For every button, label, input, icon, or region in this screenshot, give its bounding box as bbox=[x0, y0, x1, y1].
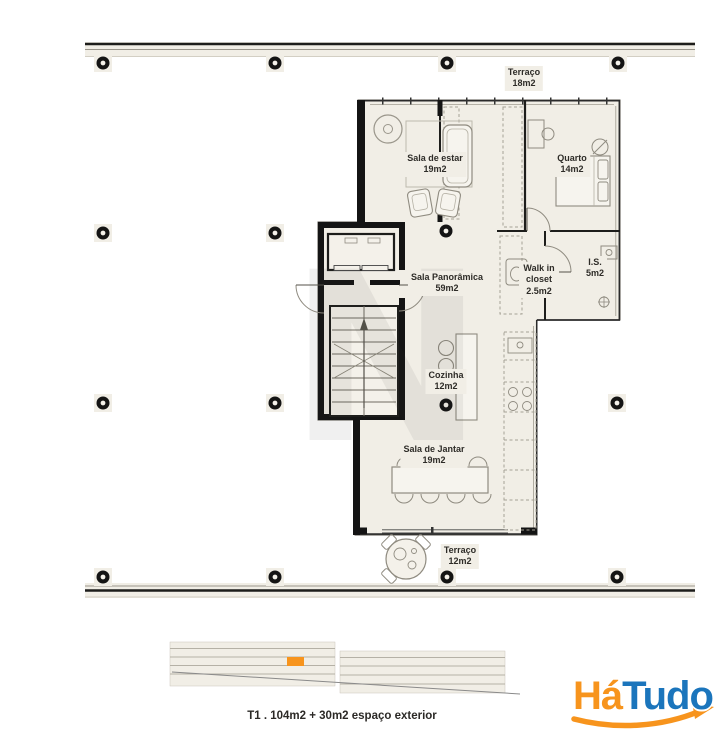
terrace-railing-top bbox=[85, 42, 695, 57]
room-label-sala-de-estar: Sala de estar 19m2 bbox=[404, 152, 466, 177]
room-label-sala-de-jantar: Sala de Jantar 19m2 bbox=[400, 443, 467, 468]
room-label-walk-in-closet: Walk in closet 2.5m2 bbox=[519, 262, 559, 298]
staircase bbox=[330, 306, 398, 416]
room-label-cozinha: Cozinha 12m2 bbox=[426, 369, 467, 394]
room-name: Walk in closet bbox=[522, 263, 556, 286]
hatudo-logo: HáTudo bbox=[573, 676, 713, 716]
room-area: 59m2 bbox=[411, 283, 483, 294]
room-area: 5m2 bbox=[586, 268, 604, 279]
room-area: 18m2 bbox=[508, 78, 540, 89]
logo-text-ha: Há bbox=[573, 674, 622, 718]
room-area: 12m2 bbox=[429, 381, 464, 392]
room-name: Sala Panorâmica bbox=[411, 272, 483, 283]
room-area: 19m2 bbox=[403, 455, 464, 466]
room-label-terraco-bottom: Terraço 12m2 bbox=[441, 544, 479, 569]
room-area: 14m2 bbox=[557, 164, 587, 175]
room-area: 12m2 bbox=[444, 556, 476, 567]
floor-plan-page: N Terraço 18m2 Sala de estar 19m2 Quarto… bbox=[0, 0, 722, 742]
room-name: Sala de estar bbox=[407, 153, 463, 164]
elevator bbox=[328, 234, 394, 271]
terrace-railing-bottom bbox=[85, 583, 695, 598]
terrace-table bbox=[381, 534, 431, 584]
room-name: I.S. bbox=[586, 257, 604, 268]
room-name: Terraço bbox=[444, 545, 476, 556]
room-name: Cozinha bbox=[429, 370, 464, 381]
room-name: Terraço bbox=[508, 67, 540, 78]
elevation-unit-highlight bbox=[287, 657, 304, 666]
room-area: 2.5m2 bbox=[522, 286, 556, 297]
plan-caption: T1 . 104m2 + 30m2 espaço exterior bbox=[242, 709, 442, 723]
room-label-sala-panoramica: Sala Panorâmica 59m2 bbox=[408, 271, 486, 296]
floor-plan-drawing bbox=[0, 0, 722, 742]
logo-text-tudo: Tudo bbox=[622, 674, 713, 718]
room-label-quarto: Quarto 14m2 bbox=[554, 152, 590, 177]
room-name: Sala de Jantar bbox=[403, 444, 464, 455]
room-label-terraco-top: Terraço 18m2 bbox=[505, 66, 543, 91]
building-elevation bbox=[170, 642, 520, 694]
room-area: 19m2 bbox=[407, 164, 463, 175]
room-label-is: I.S. 5m2 bbox=[583, 256, 607, 281]
room-name: Quarto bbox=[557, 153, 587, 164]
